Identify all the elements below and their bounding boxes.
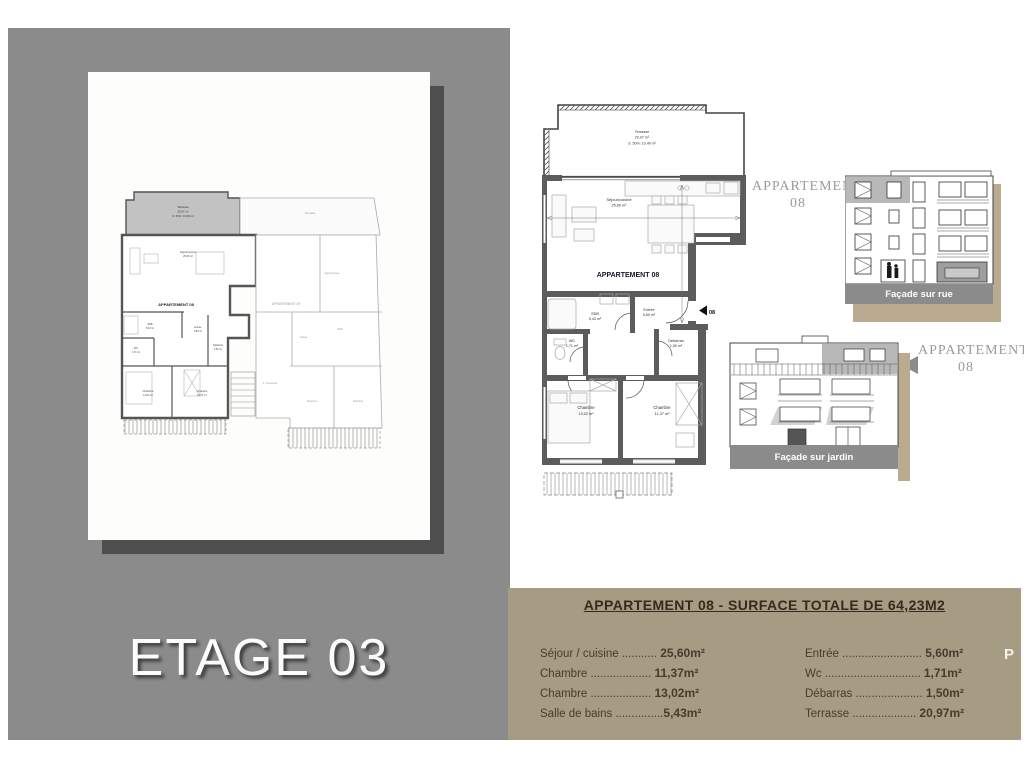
garden-facade-caption: Façade sur jardin [775, 452, 854, 463]
floor-panel: Terrasse 20,97 m² S. 50%: 10,49 m² Terra… [8, 28, 510, 740]
svg-text:Entrée: Entrée [643, 308, 654, 312]
svg-text:Chambre: Chambre [653, 405, 671, 410]
svg-text:Chambre: Chambre [197, 389, 208, 393]
svg-text:5,60 m²: 5,60 m² [643, 313, 656, 317]
svg-text:25,60 m²: 25,60 m² [183, 255, 193, 258]
plan-title: APPARTEMENT 08 [597, 272, 660, 279]
fp-terrace09-name: Terrasse [305, 211, 316, 215]
floor-plan-drawing: Terrasse 20,97 m² S. 50%: 10,49 m² Terra… [88, 72, 430, 540]
svg-text:Séjour/cuisine: Séjour/cuisine [180, 250, 197, 254]
svg-text:Débarras: Débarras [668, 339, 684, 343]
garden-facade-label-line1: APPARTEMENT [918, 342, 1014, 359]
svg-text:11,37 m²: 11,37 m² [197, 394, 207, 397]
street-facade-label: APPARTEMENT 08 [752, 178, 844, 212]
surface-table-title: APPARTEMENT 08 - SURFACE TOTALE DE 64,23… [508, 597, 1021, 613]
street-facade-caption: Façade sur rue [885, 289, 953, 300]
plan-terrace-name: Terrasse [635, 130, 650, 134]
svg-text:Séjour/cuisine: Séjour/cuisine [324, 272, 340, 275]
floorplan-terrace-09: Terrasse [240, 198, 380, 235]
surface-row: Terrasse .................... 20,97m² [805, 704, 964, 724]
surface-row: Entrée ......................... 5,60m² [805, 644, 964, 664]
fp-terrace08-name: Terrasse [177, 205, 189, 209]
floor-plan-sheet: Terrasse 20,97 m² S. 50%: 10,49 m² Terra… [88, 72, 430, 540]
fp-apt09-title: APPARTEMENT 09 [272, 302, 300, 306]
svg-text:11,37 m²: 11,37 m² [655, 412, 670, 416]
entry-arrow: 08 [699, 306, 715, 317]
svg-text:5,43 m²: 5,43 m² [589, 317, 602, 321]
garden-facade-label-line2: 08 [918, 359, 1014, 376]
brochure-page: Terrasse 20,97 m² S. 50%: 10,49 m² Terra… [0, 0, 1024, 768]
surface-columns: Séjour / cuisine ........... 25,60m² Cha… [508, 644, 1021, 724]
svg-text:Chambre: Chambre [143, 389, 154, 393]
floorplan-stairs [231, 372, 255, 416]
fp-terrace08-half: S. 50%: 10,49 m² [172, 214, 194, 218]
svg-text:Séjour/cuisine: Séjour/cuisine [606, 197, 632, 202]
surface-table: APPARTEMENT 08 - SURFACE TOTALE DE 64,23… [508, 588, 1021, 740]
surface-column-right: Entrée ......................... 5,60m² … [805, 644, 964, 724]
fp-apt08-title: APPARTEMENT 08 [158, 302, 194, 307]
street-facade-label-line2: 08 [752, 195, 844, 212]
svg-text:13,02 m²: 13,02 m² [143, 394, 153, 397]
svg-text:1,71 m²: 1,71 m² [566, 344, 579, 348]
street-facade-building [845, 171, 993, 284]
plan-balcony [544, 473, 672, 498]
garden-facade-shadow [898, 353, 910, 481]
svg-text:WC: WC [134, 347, 138, 350]
garden-facade: Façade sur jardin [726, 333, 916, 491]
svg-text:Chambre: Chambre [307, 400, 318, 403]
svg-text:Entrée: Entrée [194, 326, 202, 329]
svg-text:25,60 m²: 25,60 m² [612, 204, 628, 208]
street-facade: Façade sur rue [845, 170, 1007, 328]
plan-terrace-half: S. 50%: 10,49 m² [628, 142, 657, 146]
surface-row: Chambre ................... 11,37m² [540, 664, 775, 684]
fp-terrace08-area: 20,97 m² [177, 210, 188, 214]
surface-column-left: Séjour / cuisine ........... 25,60m² Cha… [540, 644, 775, 724]
svg-text:Débarras: Débarras [213, 344, 224, 347]
entry-arrow-label: 08 [709, 310, 715, 316]
svg-text:5,60 m²: 5,60 m² [194, 330, 202, 333]
surface-row: Wc .............................. 1,71m² [805, 664, 964, 684]
street-facade-label-line1: APPARTEMENT [752, 178, 844, 195]
cutoff-text: P [1004, 646, 1014, 663]
surface-row: Salle de bains ...............5,43m² [540, 704, 775, 724]
fp-common-label: 2. Poussettes [263, 382, 278, 385]
svg-text:WC: WC [569, 339, 576, 343]
plan-terrace-area: 20,97 m² [635, 136, 650, 140]
svg-text:SDB: SDB [591, 312, 599, 316]
garden-facade-building [730, 336, 898, 447]
svg-text:Chambre: Chambre [577, 405, 595, 410]
svg-text:1,71 m²: 1,71 m² [132, 351, 140, 354]
garden-facade-label: APPARTEMENT 08 [918, 342, 1014, 376]
plan-terrace: Terrasse 20,97 m² S. 50%: 10,49 m² [544, 105, 744, 177]
surface-row: Séjour / cuisine ........... 25,60m² [540, 644, 775, 664]
svg-text:SDB: SDB [148, 323, 153, 326]
svg-text:Entrée: Entrée [300, 336, 308, 339]
svg-text:13,02 m²: 13,02 m² [579, 412, 595, 416]
surface-row: Chambre ................... 13,02m² [540, 684, 775, 704]
floor-title: ETAGE 03 [8, 628, 510, 688]
svg-text:SDB: SDB [338, 328, 343, 331]
floorplan-terrace-08: Terrasse 20,97 m² S. 50%: 10,49 m² [126, 192, 240, 235]
surface-row: Débarras ..................... 1,50m² [805, 684, 964, 704]
svg-text:5,43 m²: 5,43 m² [146, 327, 154, 330]
svg-text:1,50 m²: 1,50 m² [214, 348, 222, 351]
svg-text:Chambre: Chambre [353, 400, 364, 403]
svg-text:1,50 m²: 1,50 m² [670, 344, 683, 348]
